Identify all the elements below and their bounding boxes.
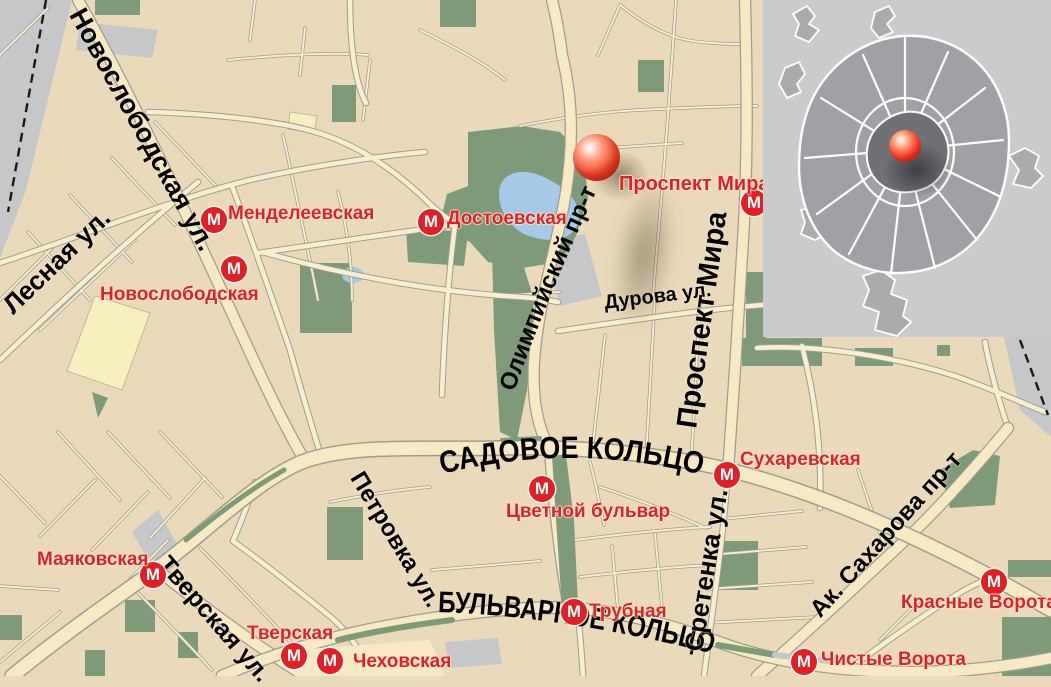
city-map[interactable]: САДОВОЕ КОЛЬЦО БУЛЬВАРНОЕ КОЛЬЦО Олимпий…	[0, 0, 1051, 676]
metro-icon-tsvetnoy-bulvar: М	[529, 476, 555, 502]
metro-icon-trubnaya: М	[561, 599, 587, 625]
metro-label-krasnye-vorota: Красные Ворота	[901, 593, 1051, 612]
metro-label-chistye-vorota: Чистые Ворота	[821, 650, 966, 669]
metro-icon-chistye-vorota: М	[791, 649, 817, 675]
metro-icon-chekhovskaya: М	[317, 648, 343, 674]
metro-label-sukharevskaya: Сухаревская	[740, 450, 861, 469]
metro-label-tsvetnoy-bulvar: Цветной бульвар	[506, 502, 670, 521]
inset-marker	[889, 130, 921, 162]
metro-icon-novoslobodskaya: М	[221, 256, 247, 282]
location-marker[interactable]	[573, 134, 620, 181]
metro-label-tverskaya: Тверская	[247, 624, 333, 643]
metro-label-mayakovskaya: Маяковская	[37, 550, 149, 569]
metro-label-dostoevskaya: Достоевская	[447, 209, 567, 228]
metro-icon-dostoevskaya: М	[418, 209, 444, 235]
inset-overview-map	[763, 0, 1051, 337]
metro-label-trubnaya: Трубная	[589, 602, 667, 621]
metro-icon-sukharevskaya: М	[714, 462, 740, 488]
metro-label-novoslobodskaya: Новослободская	[100, 285, 259, 304]
metro-icon-mendeleevskaya: М	[201, 207, 227, 233]
metro-label-mendeleevskaya: Менделеевская	[228, 204, 374, 223]
metro-icon-tverskaya: М	[281, 643, 307, 669]
metro-label-chekhovskaya: Чеховская	[353, 652, 451, 671]
